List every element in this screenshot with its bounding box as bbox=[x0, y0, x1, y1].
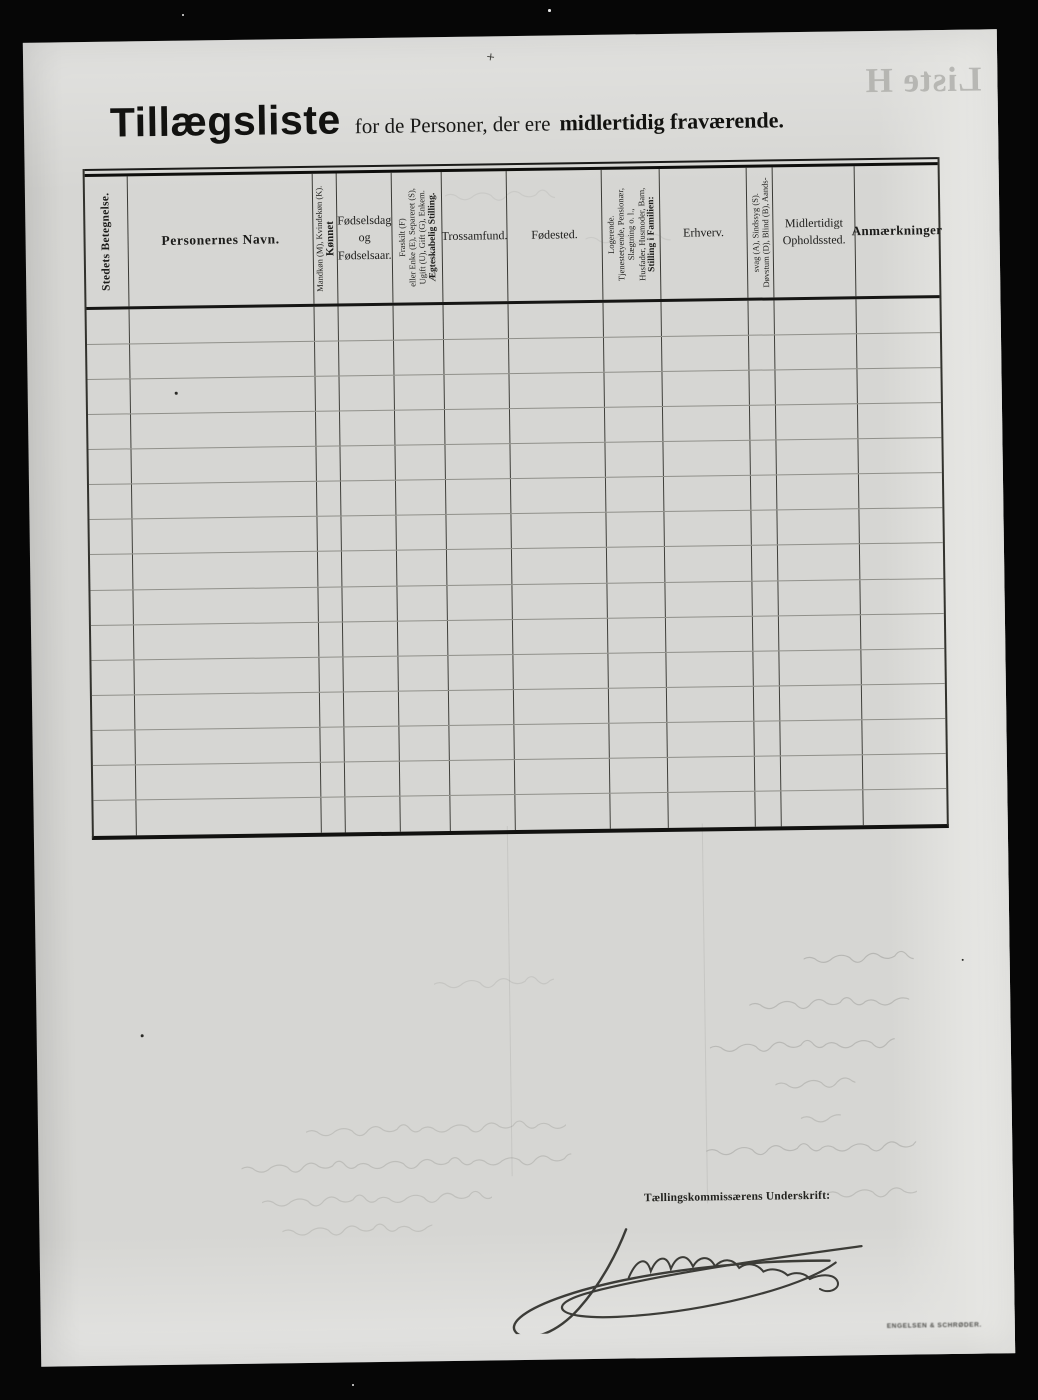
empty-cell bbox=[88, 415, 131, 450]
empty-cell bbox=[667, 686, 754, 721]
empty-cell bbox=[752, 581, 778, 615]
empty-cell bbox=[444, 304, 509, 339]
empty-cell bbox=[445, 409, 510, 444]
column-header-label: Trossamfund. bbox=[441, 227, 507, 245]
empty-cell bbox=[343, 656, 398, 691]
empty-cell bbox=[315, 306, 339, 340]
empty-cell bbox=[318, 587, 342, 621]
empty-cell bbox=[664, 511, 751, 546]
empty-cell bbox=[89, 520, 132, 555]
empty-cell bbox=[606, 477, 664, 512]
column-header-midlertidigt-opholdssted: MidlertidigtOpholdssted. bbox=[773, 166, 857, 297]
empty-cell bbox=[776, 404, 858, 439]
empty-cell bbox=[395, 445, 445, 480]
empty-cell bbox=[748, 300, 774, 334]
empty-cell bbox=[508, 303, 603, 338]
empty-cell bbox=[339, 341, 394, 376]
empty-cell bbox=[398, 621, 448, 656]
empty-cell bbox=[608, 618, 666, 653]
empty-cell bbox=[87, 344, 130, 379]
empty-cell bbox=[340, 446, 395, 481]
empty-cell bbox=[511, 513, 606, 548]
empty-cell bbox=[130, 342, 315, 379]
bleedthrough-script bbox=[710, 1033, 895, 1057]
column-header-personernes-navn: Personernes Navn. bbox=[128, 174, 315, 307]
empty-cell bbox=[449, 725, 514, 760]
column-header-label: Ugift (U), Gift (G), Enkem. bbox=[416, 190, 428, 284]
empty-cell bbox=[774, 299, 856, 334]
empty-cell bbox=[131, 412, 316, 449]
empty-cell bbox=[859, 508, 942, 543]
census-table: Stedets Betegnelse.Personernes Navn.Kønn… bbox=[83, 157, 949, 840]
empty-cell bbox=[777, 475, 859, 510]
empty-cell bbox=[605, 442, 663, 477]
empty-cell bbox=[343, 621, 398, 656]
empty-cell bbox=[604, 337, 662, 372]
empty-cell bbox=[315, 377, 339, 411]
empty-cell bbox=[664, 476, 751, 511]
empty-cell bbox=[861, 649, 944, 684]
empty-cell bbox=[609, 723, 667, 758]
empty-cell bbox=[316, 447, 340, 481]
empty-cell bbox=[861, 614, 944, 649]
column-header-label: og bbox=[358, 229, 370, 247]
column-header-anmaerkninger: Anmærkninger bbox=[855, 165, 940, 296]
empty-cell bbox=[863, 789, 946, 825]
empty-cell bbox=[755, 791, 781, 826]
empty-cell bbox=[444, 339, 509, 374]
empty-cell bbox=[780, 720, 862, 755]
empty-cell bbox=[862, 684, 945, 719]
dust-speck bbox=[352, 1384, 354, 1386]
empty-cell bbox=[446, 479, 511, 514]
empty-cell bbox=[344, 691, 399, 726]
ink-speck bbox=[962, 959, 964, 961]
empty-cell bbox=[513, 653, 608, 688]
empty-cell bbox=[136, 798, 321, 836]
empty-cell bbox=[610, 793, 668, 829]
empty-cell bbox=[513, 618, 608, 653]
column-header-label: Opholdssted. bbox=[783, 231, 846, 249]
empty-cell bbox=[665, 581, 752, 616]
empty-cell bbox=[394, 375, 444, 410]
empty-cell bbox=[93, 765, 136, 800]
empty-cell bbox=[858, 403, 941, 438]
column-header-label: Fødselsaar. bbox=[338, 246, 392, 264]
column-header-label: svag (A), Sindssyg (S). bbox=[749, 193, 760, 272]
empty-cell bbox=[319, 657, 343, 691]
empty-cell bbox=[860, 579, 943, 614]
empty-cell bbox=[131, 447, 316, 484]
empty-cell bbox=[449, 690, 514, 725]
bleedthrough-script bbox=[262, 1186, 492, 1211]
empty-cell bbox=[778, 545, 860, 580]
empty-cell bbox=[666, 651, 753, 686]
empty-cell bbox=[342, 551, 397, 586]
empty-cell bbox=[775, 369, 857, 404]
empty-cell bbox=[320, 727, 344, 761]
empty-cell bbox=[397, 585, 447, 620]
empty-cell bbox=[755, 756, 781, 790]
column-header-label: Ægteskabelig Stilling. bbox=[426, 193, 438, 282]
empty-cell bbox=[604, 372, 662, 407]
empty-cell bbox=[753, 616, 779, 650]
bleedthrough-script bbox=[585, 229, 670, 248]
empty-cell bbox=[341, 481, 396, 516]
title-subtitle-bold: midlertidig fraværende. bbox=[559, 107, 784, 136]
empty-cell bbox=[450, 760, 515, 795]
empty-cell bbox=[668, 757, 755, 792]
column-header-label: Døvstum (D), Blind (B), Aands- bbox=[759, 177, 771, 287]
empty-cell bbox=[446, 514, 511, 549]
column-header-label: Personernes Navn. bbox=[161, 231, 279, 249]
empty-cell bbox=[777, 510, 859, 545]
empty-cell bbox=[447, 550, 512, 585]
empty-cell bbox=[399, 691, 449, 726]
bleedthrough-script bbox=[801, 1108, 842, 1127]
empty-cell bbox=[93, 800, 136, 836]
bleedthrough-script bbox=[706, 1136, 916, 1161]
empty-cell bbox=[319, 622, 343, 656]
title-subtitle: for de Personer, der ere bbox=[355, 112, 551, 140]
empty-cell bbox=[754, 721, 780, 755]
empty-cell bbox=[512, 548, 607, 583]
bleedthrough-heading: Liste H bbox=[781, 59, 982, 102]
empty-cell bbox=[752, 546, 778, 580]
empty-cell bbox=[132, 482, 317, 519]
empty-cell bbox=[663, 441, 750, 476]
empty-cell bbox=[131, 377, 316, 414]
empty-cell bbox=[91, 660, 134, 695]
empty-cell bbox=[515, 759, 610, 794]
empty-cell bbox=[859, 473, 942, 508]
empty-cell bbox=[400, 761, 450, 796]
empty-cell bbox=[753, 651, 779, 685]
signature-caption: Tællingskommissærens Underskrift: bbox=[644, 1190, 830, 1205]
column-header-aegteskabelig-stilling: Ægteskabelig Stilling.Ugift (U), Gift (G… bbox=[392, 172, 444, 303]
empty-cell bbox=[340, 411, 395, 446]
empty-cell bbox=[447, 585, 512, 620]
empty-cell bbox=[663, 406, 750, 441]
empty-cell bbox=[778, 580, 860, 615]
empty-cell bbox=[448, 655, 513, 690]
empty-cell bbox=[399, 726, 449, 761]
empty-cell bbox=[608, 653, 666, 688]
empty-cell bbox=[317, 482, 341, 516]
empty-cell bbox=[666, 616, 753, 651]
empty-cell bbox=[509, 338, 604, 373]
empty-cell bbox=[606, 512, 664, 547]
empty-cell bbox=[90, 555, 133, 590]
empty-cell bbox=[394, 305, 444, 340]
column-header-label: Mandkøn (M), Kvindekøn (K). bbox=[313, 186, 325, 292]
empty-cell bbox=[345, 797, 400, 833]
empty-cell bbox=[780, 685, 862, 720]
empty-cell bbox=[515, 794, 610, 830]
empty-cell bbox=[87, 309, 130, 344]
empty-cell bbox=[860, 544, 943, 579]
empty-cell bbox=[91, 625, 134, 660]
empty-cell bbox=[750, 441, 776, 475]
empty-cell bbox=[89, 485, 132, 520]
empty-cell bbox=[321, 797, 345, 832]
title-main: Tillægsliste bbox=[110, 96, 341, 146]
empty-cell bbox=[509, 373, 604, 408]
empty-cell bbox=[661, 301, 748, 336]
empty-cell bbox=[856, 298, 939, 333]
dust-speck bbox=[548, 9, 551, 12]
empty-cell bbox=[607, 582, 665, 617]
empty-cell bbox=[396, 515, 446, 550]
column-header-label: Fødselsdag bbox=[337, 212, 391, 230]
empty-cell bbox=[448, 620, 513, 655]
scanner-background: { "document": { "title_main": "Tillægsli… bbox=[0, 0, 1038, 1400]
empty-cell bbox=[92, 695, 135, 730]
empty-cell bbox=[862, 719, 945, 754]
column-header-label: Fødested. bbox=[531, 226, 578, 244]
empty-cell bbox=[751, 511, 777, 545]
bleedthrough-script bbox=[434, 971, 555, 993]
bleedthrough-script bbox=[803, 947, 914, 968]
empty-cell bbox=[339, 376, 394, 411]
empty-cell bbox=[510, 443, 605, 478]
empty-cell bbox=[445, 444, 510, 479]
empty-cell bbox=[603, 302, 661, 337]
empty-cell bbox=[317, 517, 341, 551]
empty-cell bbox=[88, 450, 131, 485]
empty-cell bbox=[754, 686, 780, 720]
empty-cell bbox=[400, 796, 450, 832]
ink-speck bbox=[175, 392, 178, 395]
empty-cell bbox=[132, 517, 317, 554]
empty-cell bbox=[394, 340, 444, 375]
empty-cell bbox=[398, 656, 448, 691]
empty-cell bbox=[605, 407, 663, 442]
empty-cell bbox=[776, 439, 858, 474]
empty-cell bbox=[134, 657, 319, 694]
table-body bbox=[87, 298, 947, 836]
scanned-page: Liste H Tillægsliste for de Personer, de… bbox=[23, 29, 1015, 1366]
column-header-label: Erhverv. bbox=[683, 224, 724, 242]
empty-cell bbox=[665, 546, 752, 581]
empty-cell bbox=[511, 478, 606, 513]
column-header-label: Stedets Betegnelse. bbox=[99, 192, 114, 291]
empty-cell bbox=[396, 480, 446, 515]
empty-cell bbox=[779, 615, 861, 650]
empty-cell bbox=[395, 410, 445, 445]
empty-cell bbox=[320, 692, 344, 726]
empty-cell bbox=[510, 408, 605, 443]
empty-cell bbox=[668, 792, 755, 828]
empty-cell bbox=[135, 692, 320, 729]
empty-cell bbox=[136, 763, 321, 800]
empty-cell bbox=[514, 723, 609, 758]
empty-cell bbox=[135, 728, 320, 765]
empty-cell bbox=[133, 587, 318, 624]
printer-imprint: ENGELSEN & SCHRØDER. bbox=[887, 1322, 982, 1330]
bleedthrough-script bbox=[306, 1115, 566, 1141]
ink-speck bbox=[141, 1034, 144, 1037]
empty-cell bbox=[858, 438, 941, 473]
empty-cell bbox=[339, 306, 394, 341]
empty-cell bbox=[133, 552, 318, 589]
dust-speck bbox=[182, 14, 184, 16]
empty-cell bbox=[88, 380, 131, 415]
empty-cell bbox=[781, 755, 863, 790]
column-header-label: Anmærkninger bbox=[852, 222, 943, 239]
empty-cell bbox=[345, 761, 400, 796]
empty-cell bbox=[863, 754, 946, 789]
empty-cell bbox=[318, 552, 342, 586]
empty-cell bbox=[662, 371, 749, 406]
empty-cell bbox=[749, 335, 775, 369]
empty-cell bbox=[341, 516, 396, 551]
column-header-label: eller Enke (E), Separeret (S), bbox=[406, 188, 418, 287]
bleedthrough-script bbox=[749, 991, 909, 1014]
empty-cell bbox=[857, 368, 940, 403]
column-header-doevstum: Døvstum (D), Blind (B), Aands-svag (A), … bbox=[747, 167, 775, 297]
signature bbox=[497, 1215, 891, 1334]
empty-cell bbox=[781, 790, 863, 826]
column-header-foedselsdag: FødselsdagogFødselsaar. bbox=[337, 173, 394, 304]
empty-cell bbox=[609, 688, 667, 723]
page-title: Tillægsliste for de Personer, der ere mi… bbox=[110, 90, 785, 146]
column-header-stedets-betegnelse: Stedets Betegnelse. bbox=[85, 176, 130, 307]
empty-cell bbox=[750, 406, 776, 440]
ink-cross-mark: + bbox=[485, 50, 496, 64]
empty-cell bbox=[92, 730, 135, 765]
empty-cell bbox=[857, 333, 940, 368]
bleedthrough-script bbox=[775, 1072, 856, 1094]
empty-cell bbox=[667, 721, 754, 756]
empty-cell bbox=[130, 307, 315, 344]
empty-cell bbox=[607, 547, 665, 582]
empty-cell bbox=[751, 476, 777, 510]
empty-cell bbox=[662, 336, 749, 371]
empty-cell bbox=[134, 622, 319, 659]
empty-cell bbox=[315, 342, 339, 376]
column-header-label: Midlertidigt bbox=[785, 214, 843, 232]
bleedthrough-script bbox=[445, 185, 555, 205]
empty-cell bbox=[610, 758, 668, 793]
empty-cell bbox=[342, 586, 397, 621]
column-header-erhverv: Erhverv. bbox=[660, 168, 749, 299]
empty-cell bbox=[444, 374, 509, 409]
empty-cell bbox=[512, 583, 607, 618]
empty-cell bbox=[90, 590, 133, 625]
bleedthrough-script bbox=[241, 1149, 571, 1177]
empty-cell bbox=[316, 412, 340, 446]
empty-cell bbox=[514, 688, 609, 723]
empty-cell bbox=[397, 550, 447, 585]
empty-cell bbox=[775, 334, 857, 369]
column-header-label: Fraskilt (F) bbox=[396, 218, 407, 257]
empty-cell bbox=[344, 726, 399, 761]
bleedthrough-script bbox=[827, 1182, 918, 1203]
empty-cell bbox=[321, 762, 345, 796]
empty-cell bbox=[779, 650, 861, 685]
bleedthrough-script bbox=[282, 1218, 432, 1241]
empty-cell bbox=[749, 371, 775, 405]
